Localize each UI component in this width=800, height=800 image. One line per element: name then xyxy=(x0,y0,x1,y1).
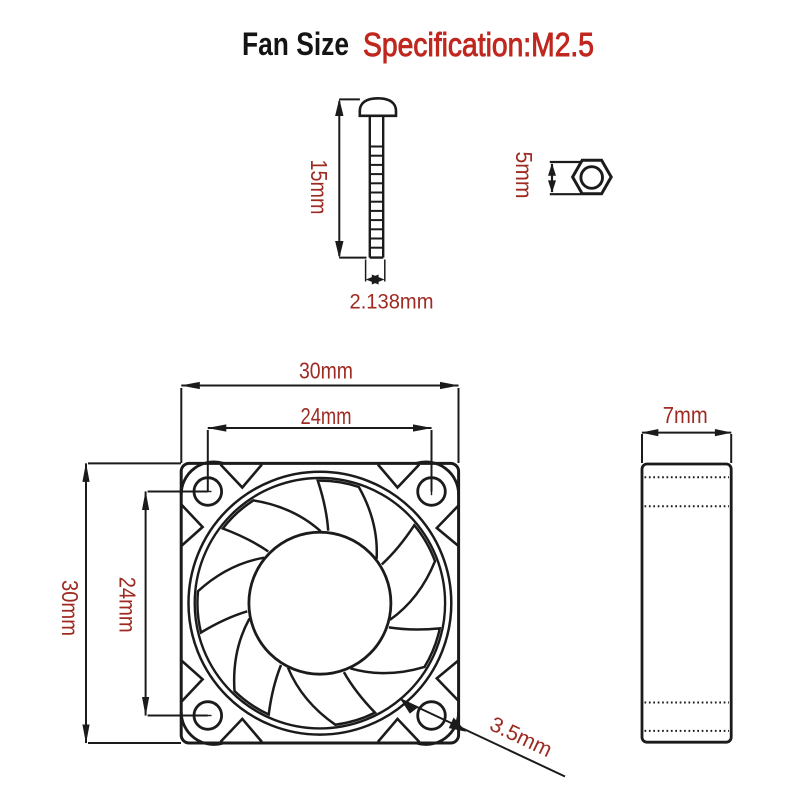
svg-text:Fan Size: Fan Size xyxy=(242,26,349,62)
svg-text:2.138mm: 2.138mm xyxy=(350,291,434,314)
svg-text:30mm: 30mm xyxy=(57,580,83,636)
svg-text:24mm: 24mm xyxy=(301,403,352,429)
svg-text:30mm: 30mm xyxy=(299,358,353,384)
svg-text:15mm: 15mm xyxy=(306,160,332,215)
svg-text:Specification:M2.5: Specification:M2.5 xyxy=(363,26,594,63)
svg-text:24mm: 24mm xyxy=(115,577,141,633)
svg-text:7mm: 7mm xyxy=(663,402,708,428)
svg-text:5mm: 5mm xyxy=(511,152,537,199)
